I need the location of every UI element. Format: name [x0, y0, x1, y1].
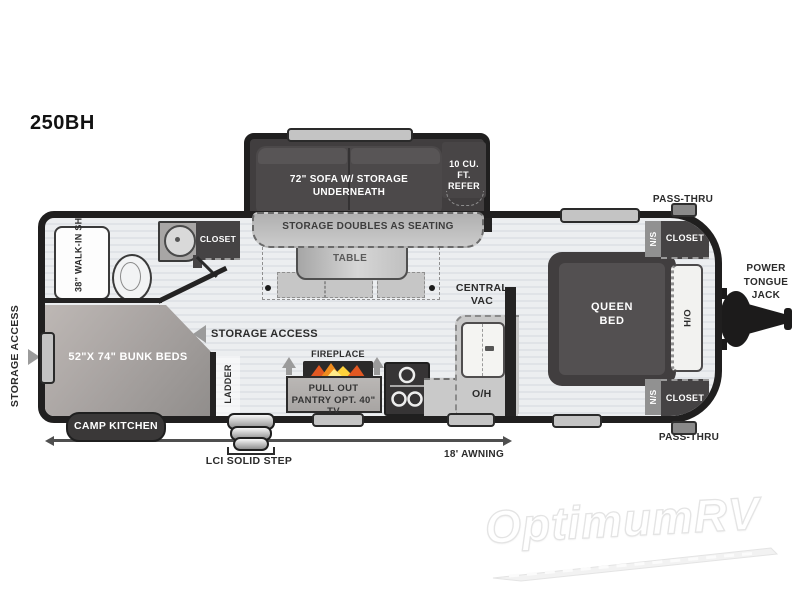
refer-door-swing — [446, 191, 484, 206]
fireplace-label: FIREPLACE — [302, 349, 374, 359]
kitchen-window — [312, 413, 364, 427]
queen-bed: QUEEN BED — [548, 252, 676, 386]
bathroom-diagonal-wall — [157, 266, 227, 303]
kitchen-window — [447, 413, 495, 427]
sofa-slide-out: 72" SOFA W/ STORAGE UNDERNEATH 10 CU. FT… — [244, 133, 490, 221]
closet-bottom-label: CLOSET — [661, 393, 709, 403]
pantry: PULL OUT PANTRY OPT. 40" TV — [286, 376, 382, 413]
bathroom-closet: CLOSET — [196, 221, 240, 260]
storage-seating-label: STORAGE DOUBLES AS SEATING — [254, 221, 482, 232]
closet-top-label: CLOSET — [661, 233, 709, 243]
pass-thru-hatch-top — [671, 203, 697, 217]
camp-kitchen-label: CAMP KITCHEN — [68, 420, 164, 432]
pass-thru-hatch-bottom — [671, 421, 697, 435]
toilet — [112, 254, 152, 302]
awning-arrow-right — [503, 436, 512, 446]
bathroom-wall — [44, 298, 162, 303]
arrow-icon — [286, 368, 292, 375]
watermark: OptimumRV — [485, 492, 800, 584]
ns-bottom: N/S — [645, 379, 661, 415]
sofa: 72" SOFA W/ STORAGE UNDERNEATH — [256, 146, 442, 213]
model-number-label: 250BH — [30, 112, 95, 135]
ns-top: N/S — [645, 221, 661, 257]
storage-access-label: STORAGE ACCESS — [211, 328, 318, 340]
central-vac-unit — [461, 322, 505, 378]
closet-top: CLOSET — [661, 221, 709, 259]
camp-kitchen: CAMP KITCHEN — [66, 412, 166, 442]
step-label: LCI SOLID STEP — [198, 455, 300, 467]
storage-access-left-label: STORAGE ACCESS — [9, 305, 21, 407]
bedroom-wall-stub — [484, 218, 492, 232]
ho-label: H/O — [683, 309, 694, 327]
bedroom-window — [552, 414, 602, 428]
arrow-icon — [374, 368, 380, 375]
sofa-label: 72" SOFA W/ STORAGE UNDERNEATH — [269, 174, 429, 199]
refer-label: 10 CU. FT. REFER — [442, 159, 486, 192]
floorplan-canvas: 250BH 72" SOFA W/ STORAGE UNDERNEATH 10 … — [0, 0, 800, 600]
table-label: TABLE — [298, 253, 402, 264]
ns-bottom-label: N/S — [648, 389, 658, 404]
ho-wardrobe: H/O — [671, 264, 703, 372]
ladder-label: LADDER — [223, 364, 233, 403]
bathroom-closet-label: CLOSET — [196, 234, 240, 244]
ns-top-label: N/S — [648, 231, 658, 246]
bunk-beds-label: 52"X 74" BUNK BEDS — [58, 351, 198, 363]
refrigerator: 10 CU. FT. REFER — [442, 142, 486, 198]
shower-label: 38" WALK-IN SHOWER — [74, 228, 85, 292]
stove-burners-icon — [386, 364, 428, 414]
overhead-cabinet-label: O/H — [472, 388, 492, 400]
closet-bottom: CLOSET — [661, 379, 709, 417]
walk-in-shower: 38" WALK-IN SHOWER — [54, 226, 110, 300]
arrow-icon — [282, 357, 296, 368]
queen-bed-label: QUEEN BED — [583, 300, 641, 328]
power-tongue-jack-icon — [714, 282, 800, 356]
storage-access-arrow — [193, 325, 206, 343]
bedroom-window — [560, 208, 640, 223]
awning-label: 18' AWNING — [444, 449, 504, 460]
sofa-back-cushion — [258, 148, 347, 164]
storage-access-door — [40, 332, 55, 384]
entry-step — [233, 437, 269, 451]
sofa-back-cushion — [351, 148, 440, 164]
awning-arrow-left — [45, 436, 54, 446]
slide-out-window — [287, 128, 413, 142]
storage-seating: STORAGE DOUBLES AS SEATING — [252, 212, 484, 248]
bedroom-wall — [505, 287, 516, 416]
